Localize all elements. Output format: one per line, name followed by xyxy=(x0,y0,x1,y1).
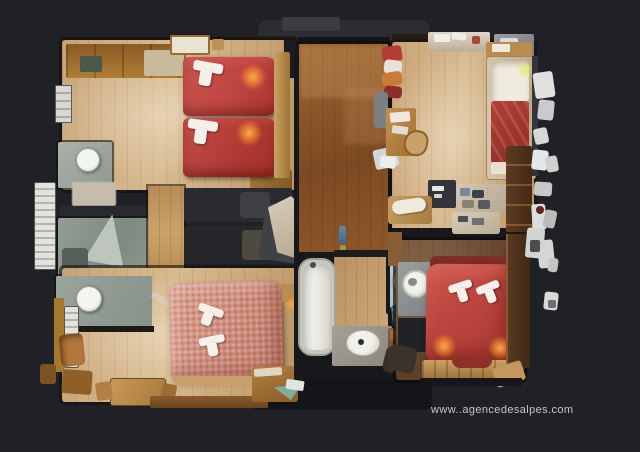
dark-storage-block xyxy=(428,180,456,208)
sink-drain xyxy=(358,339,364,345)
connector-wood xyxy=(388,232,402,266)
radiator-left-upper xyxy=(34,182,56,270)
roof-fragment xyxy=(282,17,340,31)
storage-label-mark-2 xyxy=(434,194,442,198)
blue-door-item xyxy=(339,226,346,244)
balcony-frag-3 xyxy=(534,181,553,196)
bathroom-main-floor xyxy=(334,256,388,328)
vanity-blur-box xyxy=(72,182,116,206)
bed4-lamp-glow-left xyxy=(432,334,456,358)
watermark-text: www..agencedesalpes.com xyxy=(431,404,574,416)
window-frag-right-3 xyxy=(532,127,549,146)
bathtub-faucet xyxy=(310,262,316,268)
bathroom-door-threshold xyxy=(334,250,388,257)
paper-1 xyxy=(434,34,450,42)
white-fragment-left-2 xyxy=(379,155,397,170)
paper-2 xyxy=(452,32,467,40)
balcony-frag-8-dark xyxy=(530,240,540,252)
toilet-c-top xyxy=(76,286,102,312)
wood-piece-bottom-left xyxy=(61,369,93,395)
bench-bottom-strip xyxy=(150,396,268,408)
hallway-left-wall xyxy=(294,44,299,264)
storage-label-mark-1 xyxy=(432,186,444,191)
bedroom4-bottom-wall xyxy=(420,378,522,386)
bathroom-b-dark-patch xyxy=(62,248,88,270)
toilet-a xyxy=(76,148,100,172)
twin-beds-headboard xyxy=(274,52,290,178)
bed3-head-paper xyxy=(492,44,510,52)
balcony-frag-7 xyxy=(547,257,559,272)
folded-towel-bed1 xyxy=(190,60,224,89)
floorplan-canvas[interactable]: www..agencedesalpes.com xyxy=(0,0,640,452)
bed4-red-overhang xyxy=(452,356,492,368)
balcony-frag-2 xyxy=(545,155,560,173)
shoe-4 xyxy=(462,200,474,208)
bidet-dark-blob xyxy=(408,278,417,286)
shelf-above-room1-b xyxy=(212,39,224,50)
shoe-5 xyxy=(478,200,490,209)
bedside-lamp-glow-2 xyxy=(236,120,262,146)
bag-bedroom4 xyxy=(386,343,419,374)
shelf-dark-bit-1 xyxy=(458,216,468,222)
folded-towel-bed2 xyxy=(185,118,218,146)
desk-white-item-1 xyxy=(390,111,411,123)
balcony-frag-5 xyxy=(542,209,557,229)
window-frag-right-1 xyxy=(532,71,555,100)
balcony-frag-9-dark xyxy=(548,300,556,308)
wood-piece-far-left xyxy=(40,364,56,384)
shelf-dark-bit-2 xyxy=(472,218,484,225)
bedside-lamp-glow-1 xyxy=(240,64,266,90)
screenshot-stage: www..agencedesalpes.com xyxy=(0,0,640,452)
red-item-desk xyxy=(472,36,480,44)
bathtub xyxy=(298,258,336,356)
reading-lamp-glow xyxy=(518,62,532,78)
chair-bedroom2-left xyxy=(95,381,113,401)
window-frag-right-2 xyxy=(537,99,555,121)
armchair-orange xyxy=(58,333,85,367)
shoe-3 xyxy=(486,188,496,196)
wardrobe-green-item xyxy=(80,56,102,72)
shoe-1 xyxy=(460,188,470,196)
balcony-dark-dot xyxy=(536,206,544,214)
wall-unit-brown xyxy=(506,146,532,232)
shoe-2 xyxy=(472,190,484,198)
bedroom1-window xyxy=(55,85,72,123)
shelf-above-room1 xyxy=(170,35,210,55)
